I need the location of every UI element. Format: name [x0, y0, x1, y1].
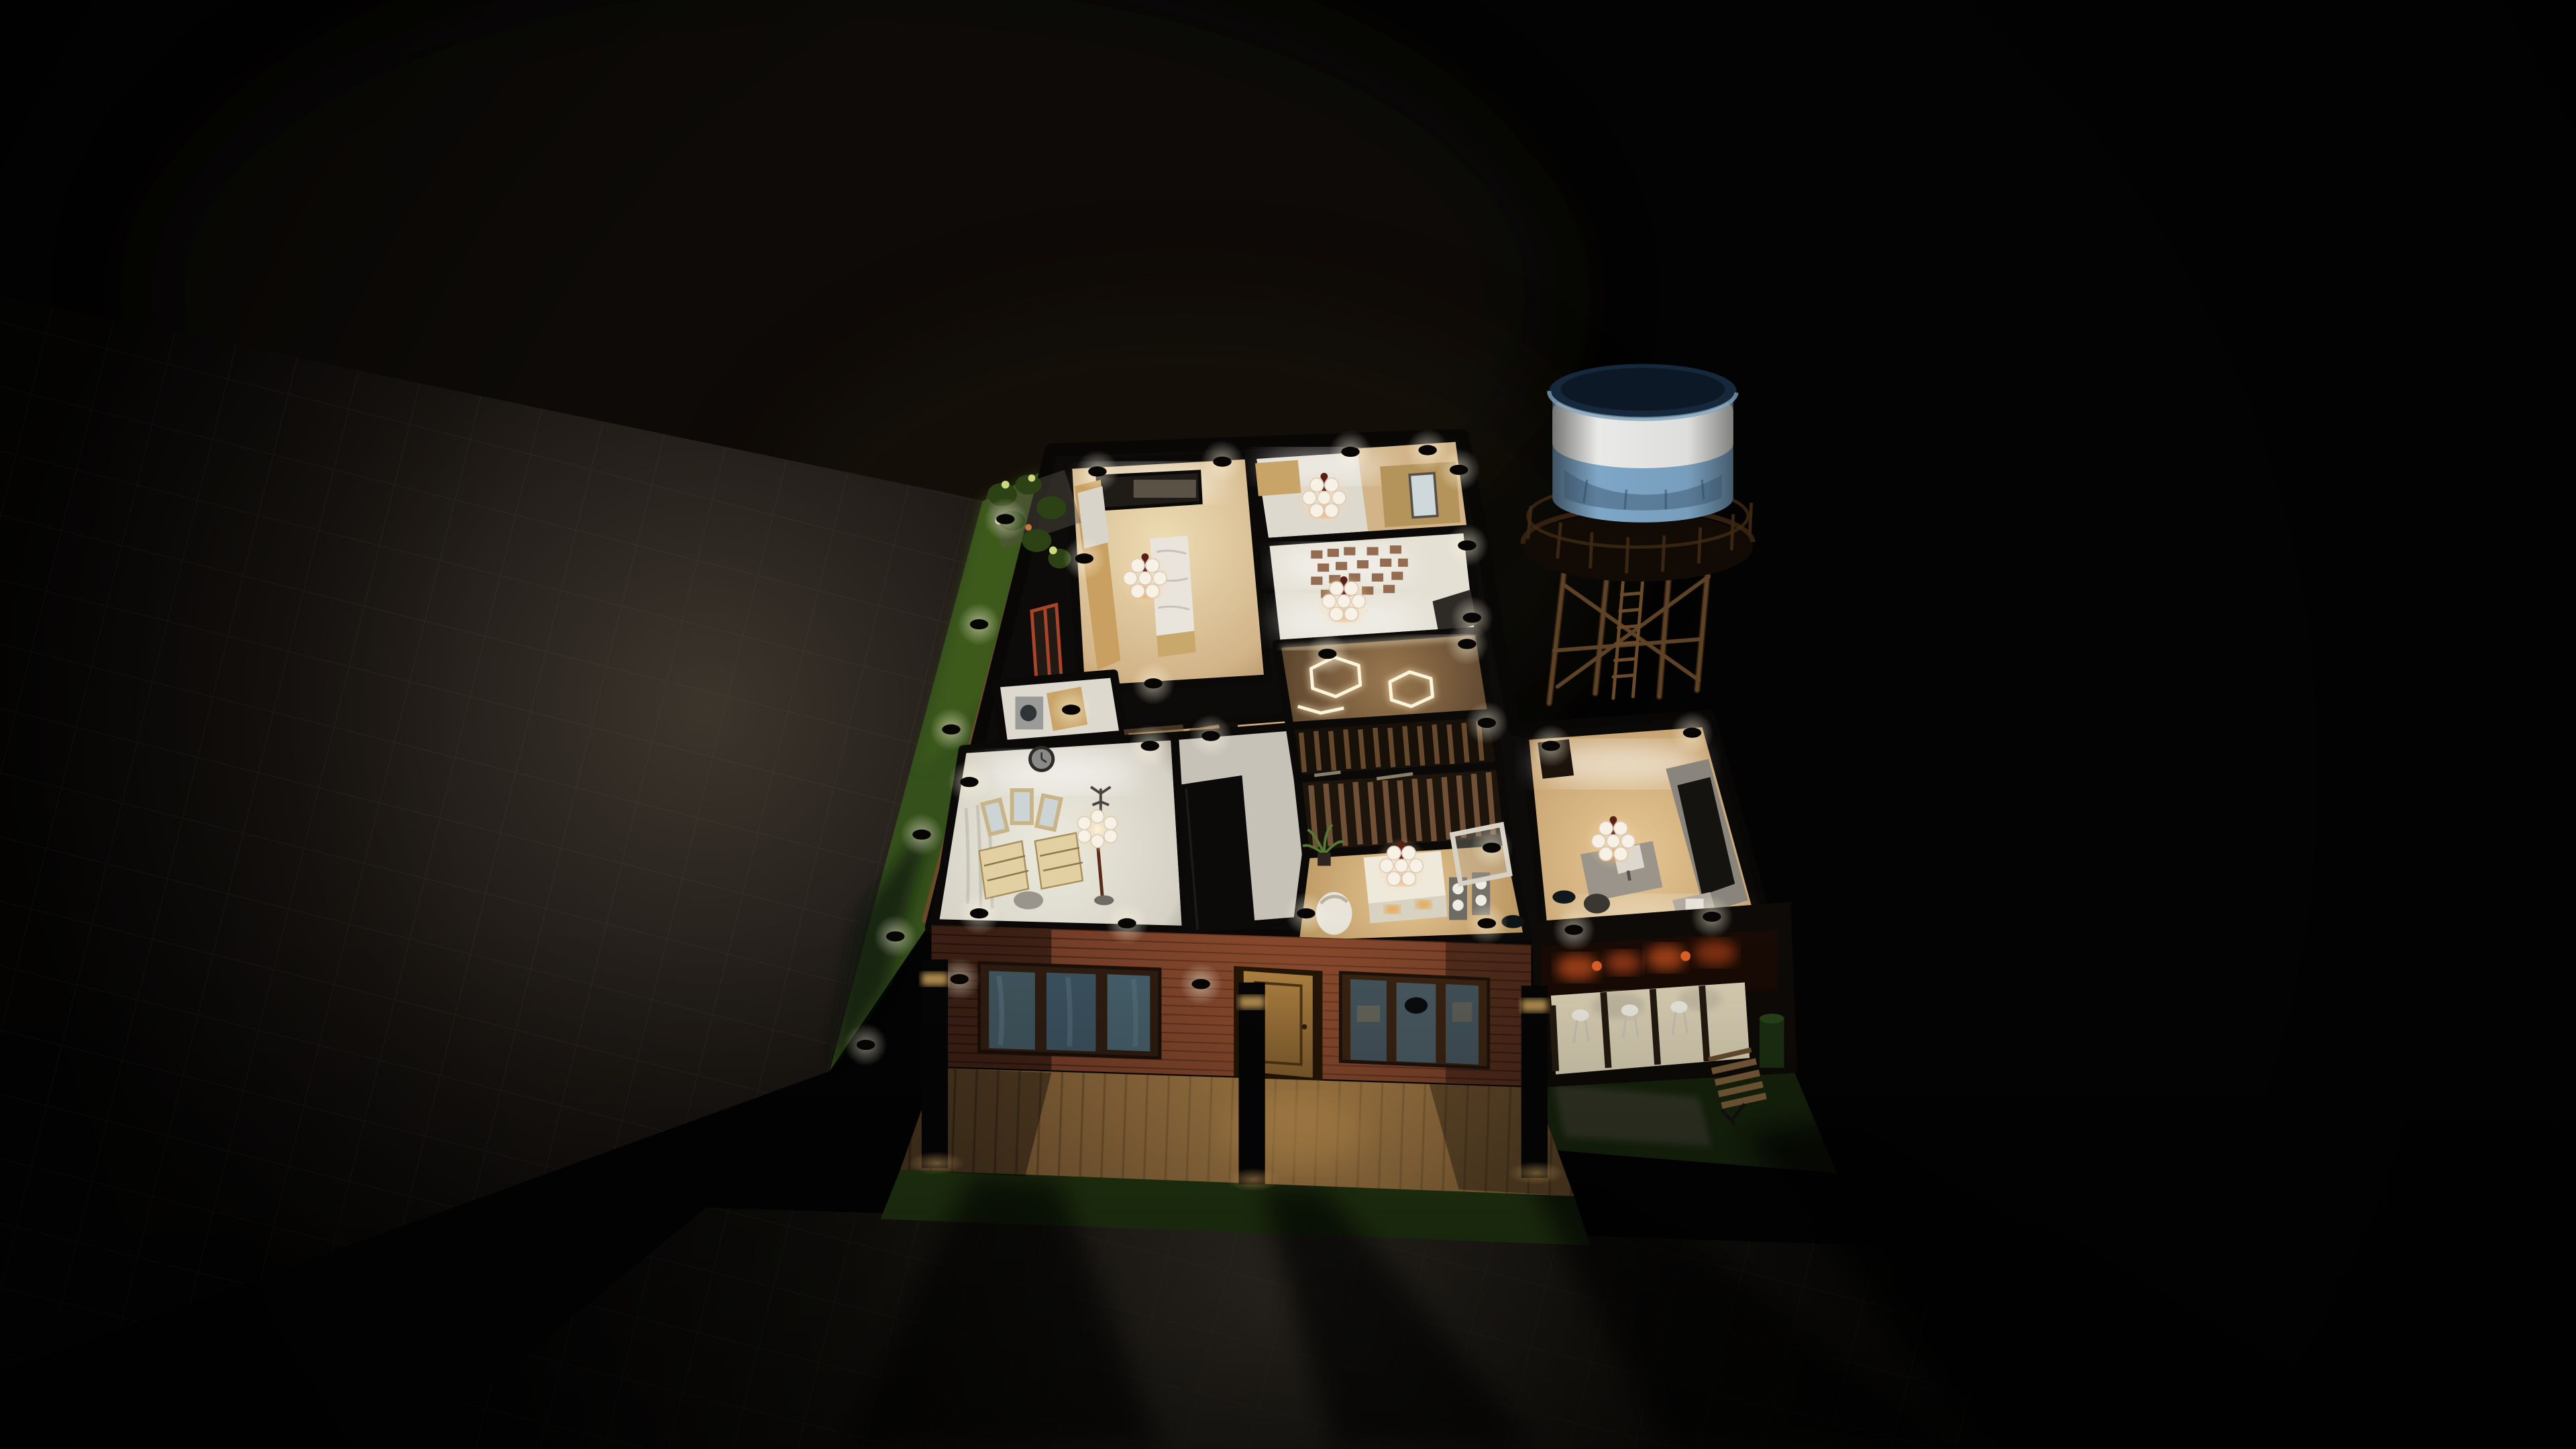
vignette — [0, 0, 2576, 1449]
night-render-scene — [0, 0, 2576, 1449]
